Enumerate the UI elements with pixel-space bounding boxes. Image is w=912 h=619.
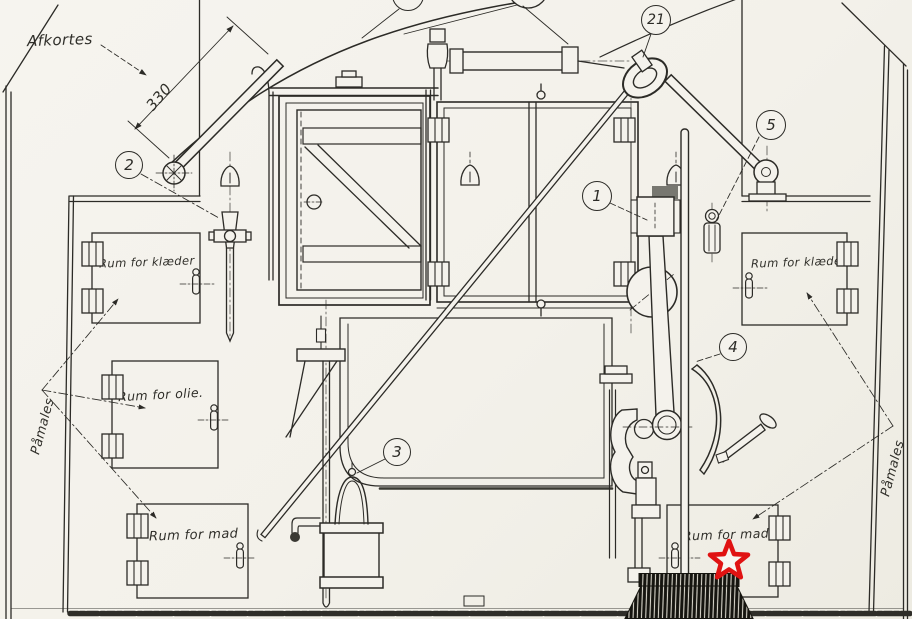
door-oil [112, 361, 218, 468]
afkortes-leader [101, 45, 146, 75]
red-star-marker [710, 541, 748, 577]
release-gear [627, 186, 680, 416]
broom-bristles [625, 586, 753, 619]
left-strut [156, 60, 283, 191]
callout-4: 4 [719, 333, 747, 361]
door-clothes-right [742, 233, 847, 325]
bucket [324, 531, 379, 584]
small-fitting-5 [704, 210, 720, 254]
stand-and-bucket [286, 316, 383, 607]
cut-callout-circle [508, 0, 548, 8]
cabinet [252, 67, 438, 305]
technical-drawing-page: Afkortes 330 Rum for klæder Rum for olie… [0, 0, 912, 619]
broom-handle [681, 129, 689, 578]
door-clothes-left [92, 233, 200, 323]
callout-2: 2 [115, 151, 143, 179]
callout-21: 21 [641, 5, 671, 35]
hand-pump [600, 365, 779, 582]
faucet [292, 518, 320, 533]
water-tank [340, 308, 638, 489]
door-food-left [137, 504, 248, 598]
drawing-linework [0, 0, 912, 619]
dimension-330 [128, 17, 268, 158]
paamales-leaders [42, 293, 893, 519]
callout-3: 3 [383, 438, 411, 466]
callout-1: 1 [582, 181, 612, 211]
turnbuckle-assembly [362, 0, 624, 100]
callout-5: 5 [756, 110, 786, 140]
